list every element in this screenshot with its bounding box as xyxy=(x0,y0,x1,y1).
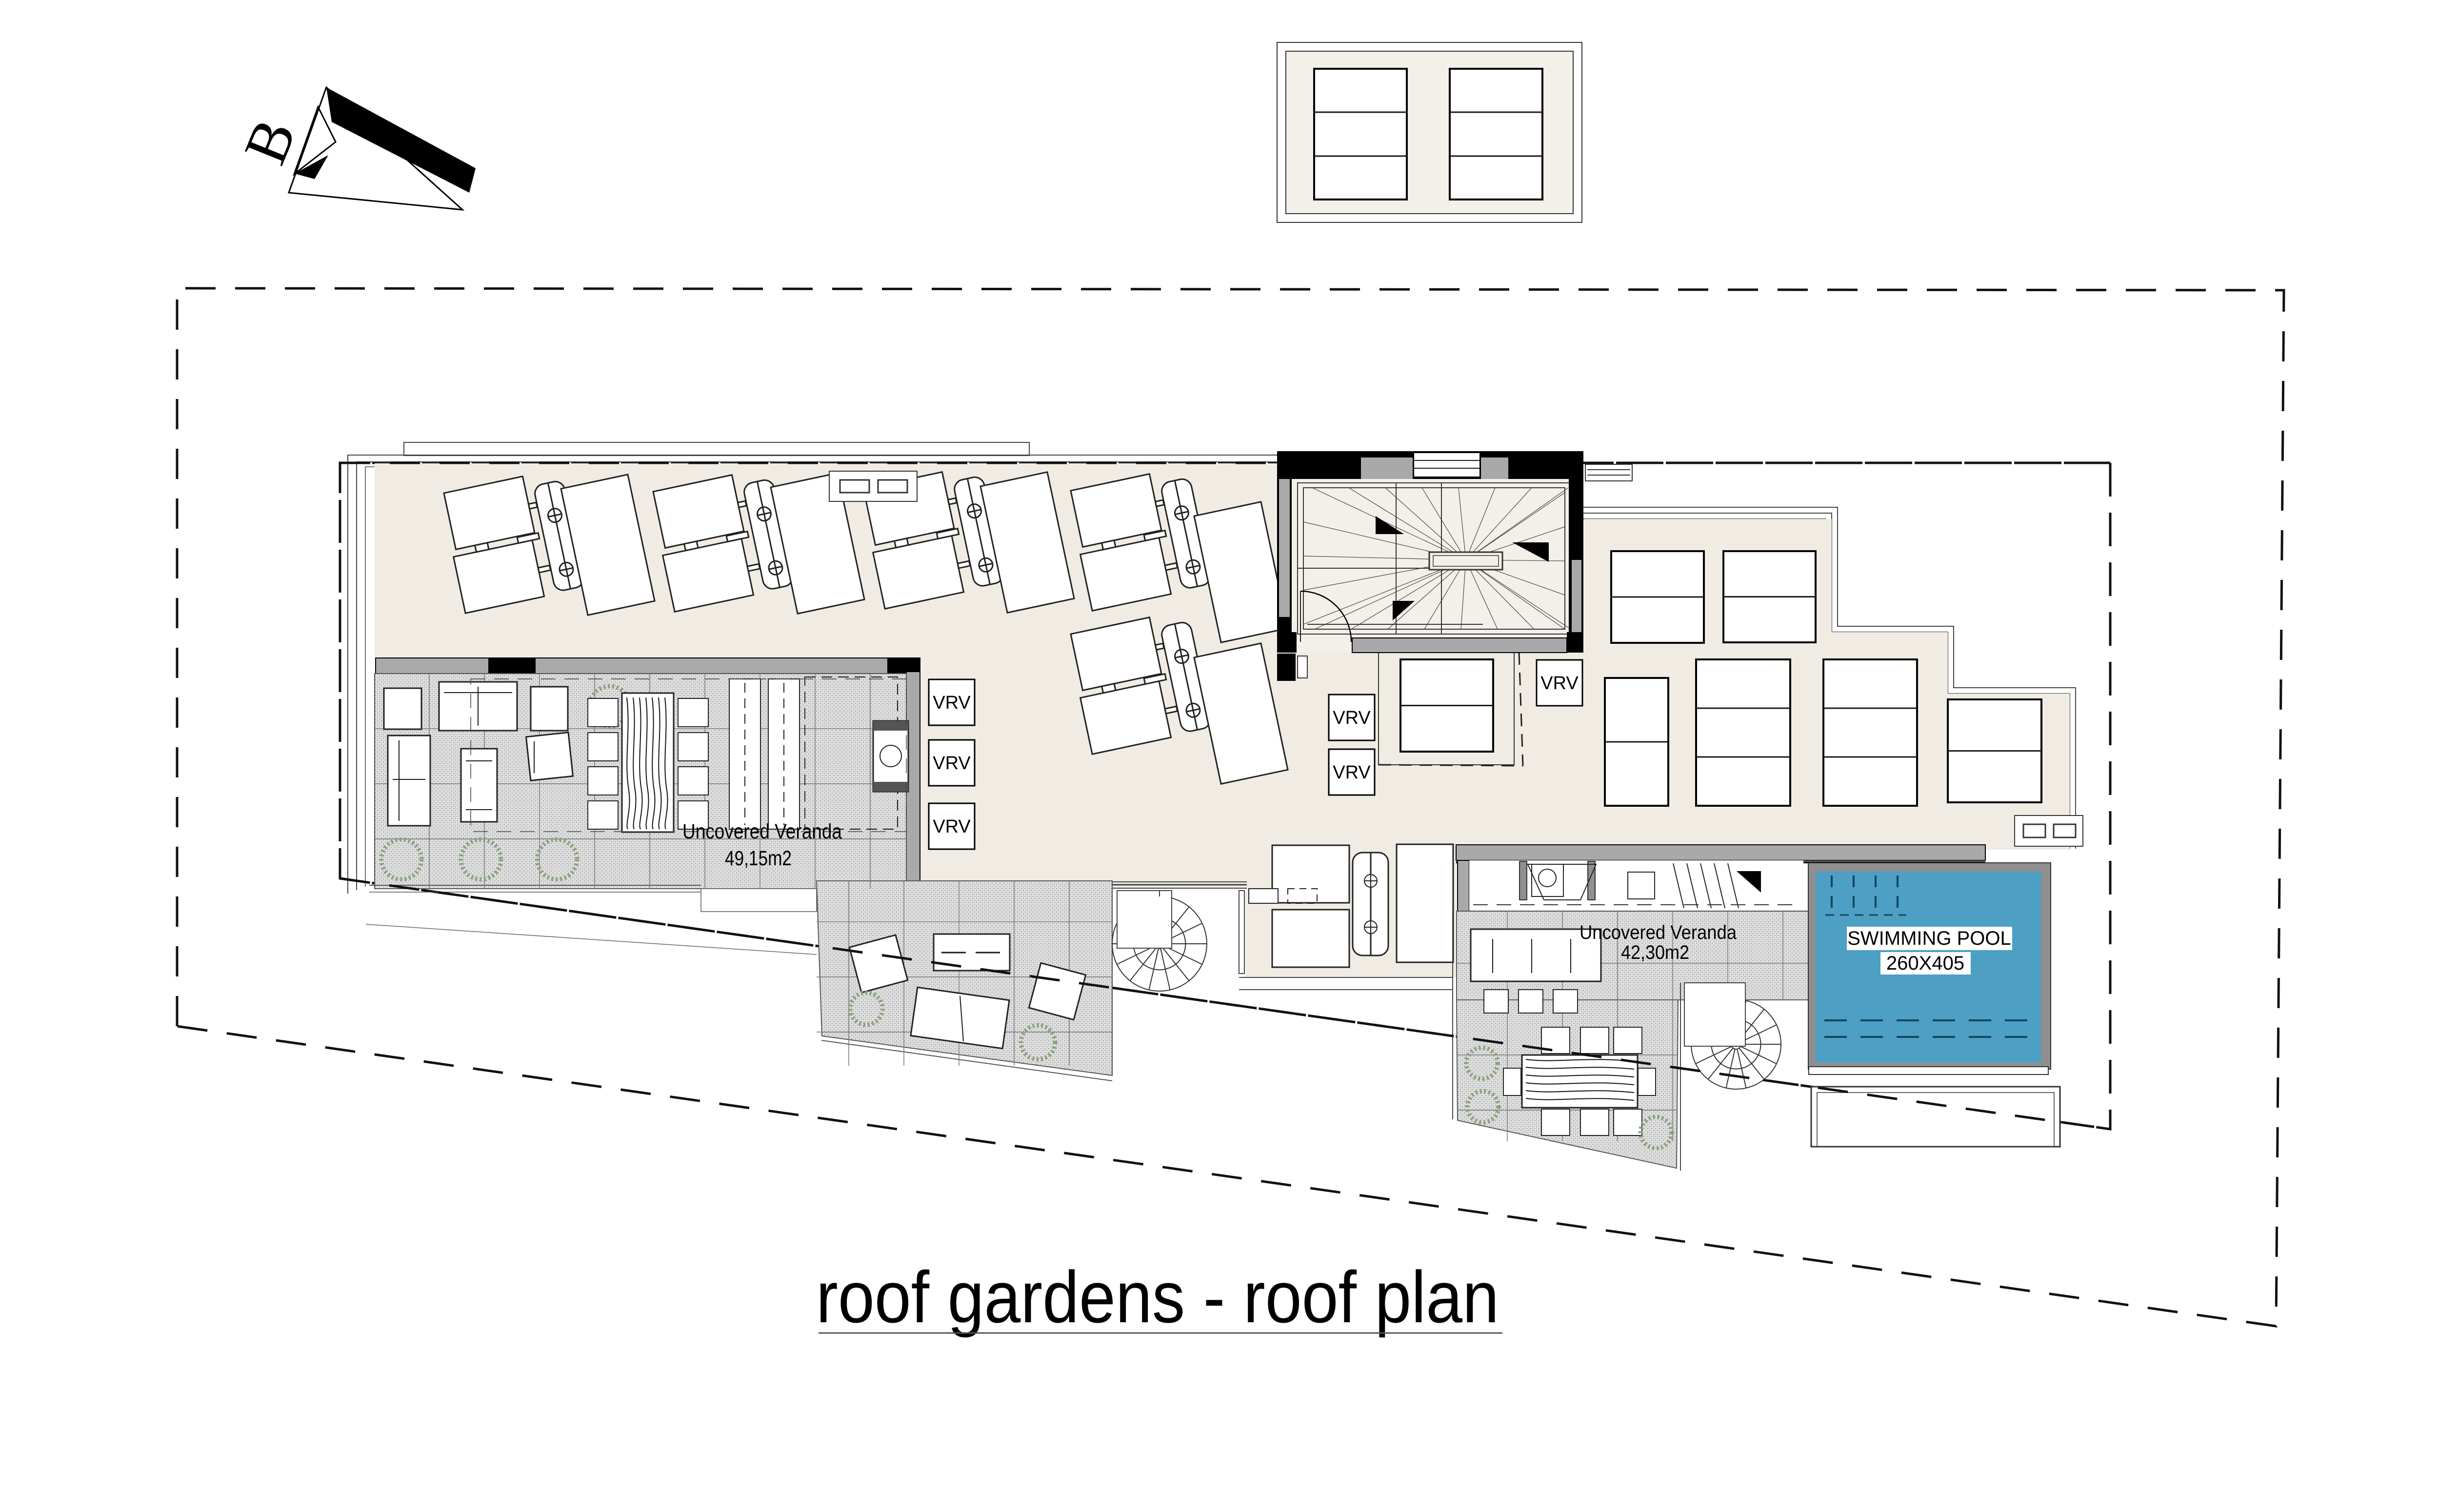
svg-text:VRV: VRV xyxy=(1540,673,1579,694)
svg-text:42,30m2: 42,30m2 xyxy=(1621,942,1689,963)
svg-text:Uncovered Veranda: Uncovered Veranda xyxy=(1579,922,1737,943)
svg-text:Uncovered Veranda: Uncovered Veranda xyxy=(682,820,842,843)
svg-text:B: B xyxy=(232,110,309,173)
svg-text:VRV: VRV xyxy=(933,693,971,713)
svg-text:VRV: VRV xyxy=(1333,762,1371,783)
svg-text:VRV: VRV xyxy=(1333,708,1371,728)
svg-text:SWIMMING POOL: SWIMMING POOL xyxy=(1847,928,2011,949)
svg-text:VRV: VRV xyxy=(933,816,971,837)
svg-text:VRV: VRV xyxy=(933,753,971,774)
svg-text:260X405: 260X405 xyxy=(1886,953,1964,974)
svg-text:49,15m2: 49,15m2 xyxy=(725,847,792,870)
svg-text:roof gardens - roof plan: roof gardens - roof plan xyxy=(816,1256,1499,1338)
